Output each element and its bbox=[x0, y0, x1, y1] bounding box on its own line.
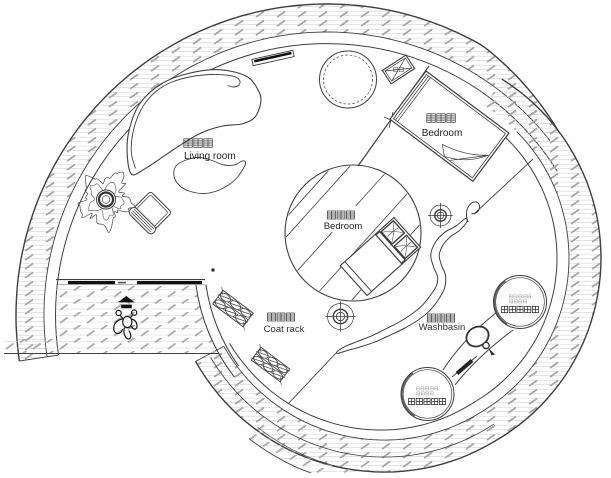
svg-text:Bedroom: Bedroom bbox=[422, 128, 463, 139]
svg-text:Living room: Living room bbox=[184, 151, 236, 162]
svg-text:Bedroom: Bedroom bbox=[324, 221, 363, 232]
svg-text:Washbasin: Washbasin bbox=[419, 322, 466, 333]
svg-text:Coat rack: Coat rack bbox=[264, 324, 305, 335]
